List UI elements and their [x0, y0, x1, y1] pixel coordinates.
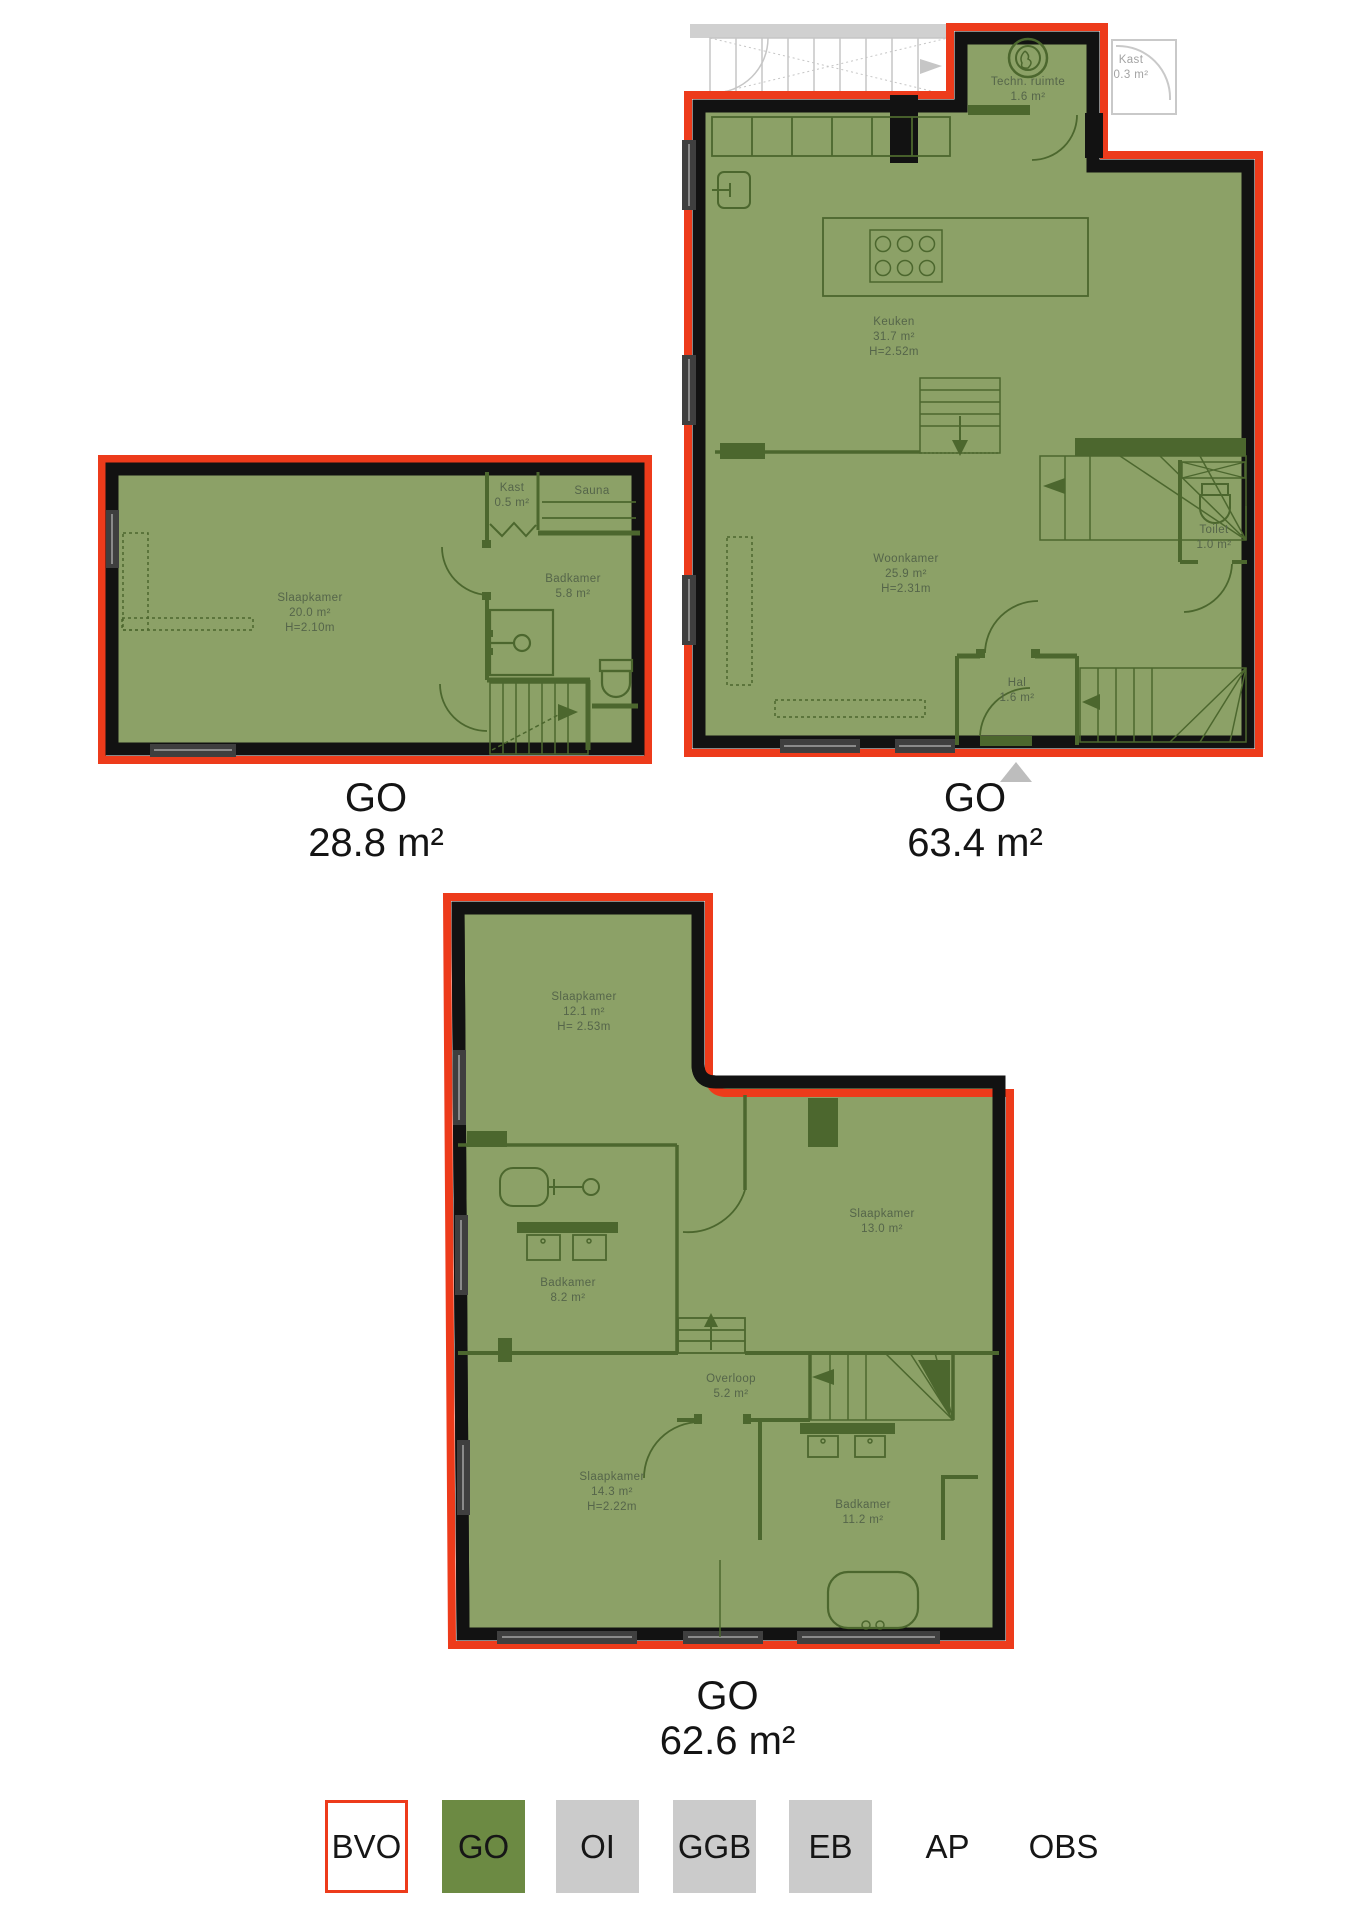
legend-item-obs[interactable]: OBS	[1022, 1800, 1105, 1893]
stair-direction-arrow	[920, 59, 942, 74]
room-label-slaapkamer-p1: Slaapkamer 20.0 m² H=2.10m	[277, 591, 342, 636]
room-label-badkamer2-p3: Badkamer 11.2 m²	[835, 1498, 891, 1528]
room-label-toilet: Toilet 1.0 m²	[1197, 523, 1232, 553]
legend-item-oi[interactable]: OI	[556, 1800, 639, 1893]
room-label-slaapkamer1-p3: Slaapkamer 12.1 m² H= 2.53m	[551, 990, 616, 1035]
room-label-slaapkamer2-p3: Slaapkamer 13.0 m²	[849, 1207, 914, 1237]
floorplan-3-drawing	[430, 885, 1025, 1660]
floorplan-3-boundary	[447, 897, 1010, 1645]
legend-label: GGB	[678, 1828, 751, 1866]
room-label-badkamer1-p3: Badkamer 8.2 m²	[540, 1276, 596, 1306]
legend-item-ap[interactable]: AP	[906, 1800, 989, 1893]
legend-item-go[interactable]: GO	[442, 1800, 525, 1893]
legend-item-bvo[interactable]: BVO	[325, 1800, 408, 1893]
legend-label: EB	[808, 1828, 852, 1866]
room-label-overloop: Overloop 5.2 m²	[706, 1372, 756, 1402]
room-label-hal: Hal 1.6 m²	[1000, 676, 1035, 706]
room-label-sauna-p1: Sauna	[574, 484, 609, 499]
room-label-kast-buiten: Kast 0.3 m²	[1114, 53, 1149, 83]
room-label-slaapkamer3-p3: Slaapkamer 14.3 m² H=2.22m	[579, 1470, 644, 1515]
legend-label: GO	[458, 1828, 509, 1866]
room-label-woonkamer: Woonkamer 25.9 m² H=2.31m	[873, 552, 938, 597]
room-label-keuken: Keuken 31.7 m² H=2.52m	[869, 315, 919, 360]
floorplan-2-drawing	[680, 16, 1270, 791]
legend-item-ggb[interactable]: GGB	[673, 1800, 756, 1893]
plan-3-caption: GO 62.6 m²	[430, 1674, 1025, 1764]
legend-item-eb[interactable]: EB	[789, 1800, 872, 1893]
legend-label: BVO	[332, 1828, 402, 1866]
room-label-kast-p1: Kast 0.5 m²	[495, 481, 530, 511]
legend-label: OBS	[1029, 1828, 1099, 1866]
outside-staircase	[690, 24, 948, 95]
room-label-techn-ruimte: Techn. ruimte 1.6 m²	[991, 75, 1065, 105]
floorplan-1-drawing	[98, 452, 654, 768]
plan-1-caption: GO 28.8 m²	[98, 776, 654, 866]
floorplan-page: Slaapkamer 20.0 m² H=2.10m Kast 0.5 m² S…	[0, 0, 1358, 1920]
legend-label: OI	[580, 1828, 615, 1866]
legend-label: AP	[925, 1828, 969, 1866]
room-label-badkamer-p1: Badkamer 5.8 m²	[545, 572, 601, 602]
plan-2-caption: GO 63.4 m²	[680, 776, 1270, 866]
